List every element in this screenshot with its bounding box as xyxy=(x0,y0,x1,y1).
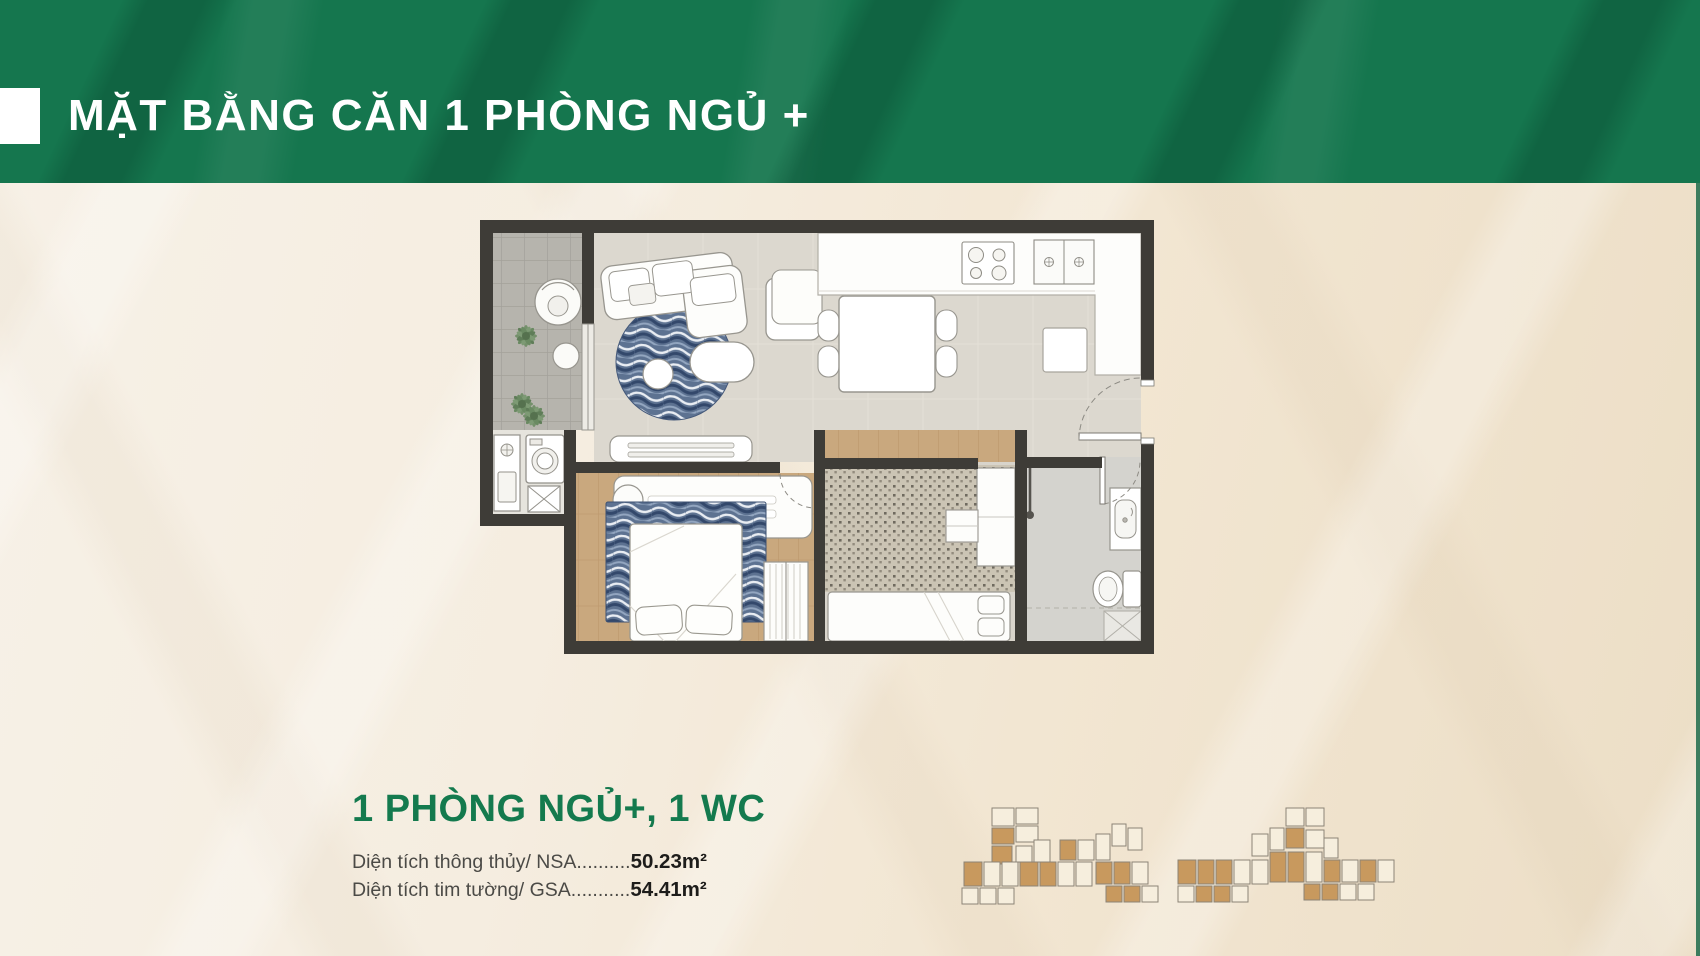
area-value-nsa: 50.23m² xyxy=(631,850,707,873)
area-row-nsa: Diện tích thông thủy/ NSA..........50.23… xyxy=(352,848,765,876)
site-key-plan xyxy=(956,804,1398,908)
toilet-icon xyxy=(1093,571,1141,607)
sink-icon xyxy=(1034,240,1094,284)
building-b xyxy=(1178,808,1394,902)
unit-info: 1 PHÒNG NGỦ+, 1 WC Diện tích thông thủy/… xyxy=(352,788,765,904)
wardrobe-rail xyxy=(764,562,808,641)
area-row-gsa: Diện tích tim tường/ GSA...........54.41… xyxy=(352,876,765,904)
header-accent-square xyxy=(0,88,40,144)
vanity-sink-icon xyxy=(1110,488,1141,550)
area-label-gsa: Diện tích tim tường/ GSA........... xyxy=(352,879,630,901)
laundry-fixtures xyxy=(494,435,564,512)
stove-icon xyxy=(962,242,1014,284)
header-banner: MẶT BẰNG CĂN 1 PHÒNG NGỦ + xyxy=(0,0,1700,183)
right-edge-strip xyxy=(1696,183,1700,956)
single-bed xyxy=(828,592,1010,641)
plant-icon xyxy=(515,325,537,347)
page-title: MẶT BẰNG CĂN 1 PHÒNG NGỦ + xyxy=(68,88,810,144)
double-bed xyxy=(630,524,742,641)
building-a xyxy=(962,808,1158,904)
area-rows: Diện tích thông thủy/ NSA..........50.23… xyxy=(352,848,765,904)
side-table xyxy=(766,270,822,340)
floor-plan xyxy=(478,214,1158,654)
area-value-gsa: 54.41m² xyxy=(630,878,706,901)
fridge xyxy=(1043,328,1087,372)
unit-name: 1 PHÒNG NGỦ+, 1 WC xyxy=(352,788,765,831)
plant-icon xyxy=(523,405,545,427)
sliding-door xyxy=(582,324,594,430)
tv-console xyxy=(610,436,752,462)
hallway-floor xyxy=(825,430,1015,462)
area-label-nsa: Diện tích thông thủy/ NSA.......... xyxy=(352,851,631,873)
room-balcony xyxy=(492,233,582,430)
